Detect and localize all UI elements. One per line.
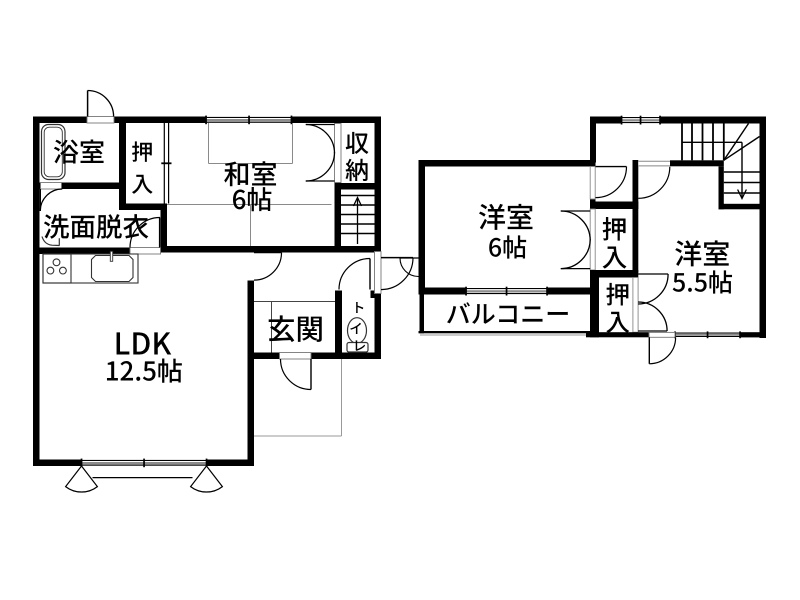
svg-text:押: 押 (131, 135, 153, 167)
svg-text:12.5帖: 12.5帖 (105, 352, 183, 389)
svg-text:入: 入 (131, 167, 153, 199)
svg-text:入: 入 (602, 238, 628, 275)
svg-text:ト: ト (352, 297, 366, 317)
svg-text:バルコニー: バルコニー (446, 295, 571, 331)
svg-text:洗面脱衣: 洗面脱衣 (43, 206, 149, 245)
svg-text:6帖: 6帖 (488, 228, 527, 264)
svg-text:入: 入 (606, 304, 631, 339)
svg-text:レ: レ (353, 335, 367, 355)
svg-text:納: 納 (345, 151, 369, 186)
svg-text:6帖: 6帖 (232, 180, 273, 217)
svg-text:5.5帖: 5.5帖 (672, 263, 733, 299)
svg-text:浴室: 浴室 (53, 132, 105, 169)
svg-text:玄関: 玄関 (267, 307, 324, 348)
